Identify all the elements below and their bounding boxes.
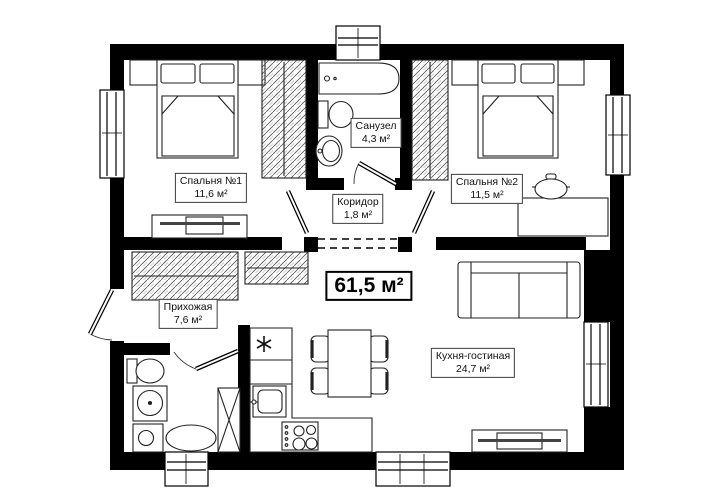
window-bedroom2-right <box>606 95 630 175</box>
second-bathroom-fixtures <box>127 359 240 452</box>
pillow <box>482 64 515 83</box>
room-area: 7,6 м² <box>164 314 213 327</box>
room-name: Коридор <box>337 196 378 209</box>
bathtub <box>319 63 399 94</box>
window-kitchen-bottom <box>376 452 450 486</box>
window-bathroom-top <box>336 26 380 60</box>
bathroom-door <box>354 163 396 184</box>
toilet <box>318 101 353 128</box>
total-area-label: 61,5 м² <box>325 271 412 301</box>
sofa <box>458 262 580 318</box>
room-label-bedroom1: Спальня №1 11,6 м² <box>175 173 247 203</box>
pillow <box>521 64 554 83</box>
entrance-opening <box>110 289 124 341</box>
tv-console <box>152 215 247 238</box>
toilet <box>127 359 164 383</box>
room-name: Кухня-гостиная <box>436 350 510 363</box>
room-label-corridor: Коридор 1,8 м² <box>332 194 383 224</box>
kitchen-furniture <box>250 262 580 452</box>
double-bed <box>478 60 558 158</box>
chair <box>311 336 330 362</box>
bedroom1-door <box>288 191 307 233</box>
room-name: Спальня №1 <box>180 175 242 188</box>
washing-machine <box>133 424 163 452</box>
blanket <box>162 96 234 156</box>
room-area: 24,7 м² <box>436 363 510 376</box>
pillow <box>161 64 195 83</box>
tv-icon <box>160 222 240 225</box>
bedroom2-furniture <box>412 60 608 236</box>
desk-chair <box>532 174 570 199</box>
bathroom-fixtures <box>316 63 399 166</box>
wardrobe-hangers <box>245 252 308 284</box>
cooktop <box>282 422 318 450</box>
bedroom2-door <box>414 191 433 233</box>
floor-plan-drawing <box>0 0 710 502</box>
cabinet-crossed <box>218 388 240 452</box>
room-area: 11,6 м² <box>180 188 242 201</box>
double-bed <box>157 60 238 158</box>
room-label-bedroom2: Спальня №2 11,5 м² <box>451 174 523 204</box>
nightstand <box>452 60 478 85</box>
dining-table <box>328 330 371 397</box>
wardrobe-hangers <box>262 60 306 178</box>
bathtub-oval <box>166 425 216 451</box>
floor-plan: Спальня №1 11,6 м² Санузел 4,3 м² Спальн… <box>0 0 710 502</box>
nightstand <box>130 60 157 85</box>
corridor-opening-dashed <box>318 239 398 248</box>
room-area: 11,5 м² <box>456 189 518 202</box>
pillow <box>200 64 234 83</box>
washbasin <box>316 136 342 166</box>
room-name: Спальня №2 <box>456 176 518 189</box>
bedroom1-furniture <box>130 60 306 238</box>
room-name: Санузел <box>356 120 397 133</box>
dining-table-set <box>311 330 388 397</box>
nightstand <box>558 60 584 85</box>
entrance-door <box>90 290 112 340</box>
room-label-hallway: Прихожая 7,6 м² <box>159 299 218 329</box>
nightstand <box>238 60 265 85</box>
chair <box>369 336 388 362</box>
tv-icon <box>478 439 561 442</box>
window-bathroom2-bottom <box>165 452 208 486</box>
wardrobe-hangers <box>412 60 448 180</box>
desk <box>518 198 608 236</box>
chair <box>369 368 388 394</box>
room-label-kitchen-living: Кухня-гостиная 24,7 м² <box>431 348 515 378</box>
hallway-furniture <box>132 252 308 300</box>
kitchen-sink <box>250 386 286 417</box>
window-kitchen-right <box>584 322 608 407</box>
window-bedroom1-left <box>100 90 124 178</box>
second-bathroom-door <box>174 351 238 369</box>
wardrobe-hangers <box>132 252 238 300</box>
blanket <box>483 96 553 156</box>
washbasin <box>133 386 167 421</box>
room-area: 4,3 м² <box>356 133 397 146</box>
chair <box>311 368 330 394</box>
tv-console <box>472 430 567 452</box>
room-label-bathroom: Санузел 4,3 м² <box>351 118 402 148</box>
room-area: 1,8 м² <box>337 209 378 222</box>
room-name: Прихожая <box>164 301 213 314</box>
